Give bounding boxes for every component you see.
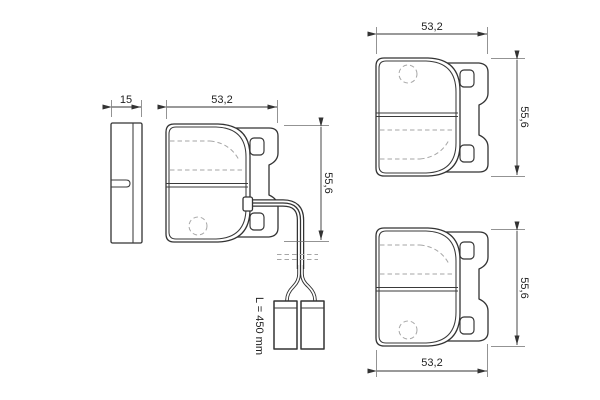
dim-front-height-label: 55,6 — [322, 172, 334, 193]
dim-rear-top-width-label: 53,2 — [421, 21, 442, 33]
brake-pad-drawing: 15 L = 450 mm 53,2 — [0, 0, 600, 400]
wire-length-label: L = 450 mm — [253, 297, 265, 355]
dim-rear-bottom-height-label: 55,6 — [518, 277, 530, 298]
connector-right — [301, 301, 324, 349]
dim-rear-top-height-label: 55,6 — [518, 106, 530, 127]
dim-rear-bottom-width: 53,2 — [377, 344, 488, 377]
front-pad-view — [166, 124, 278, 242]
rear-bottom-pad-view — [376, 228, 488, 346]
rear-top-pad-view — [376, 58, 488, 176]
dim-rear-bottom-width-label: 53,2 — [421, 357, 442, 369]
dim-side-thickness: 15 — [112, 94, 142, 117]
dim-side-thickness-label: 15 — [120, 94, 132, 106]
dim-front-width-label: 53,2 — [211, 94, 232, 106]
wear-sensor-tab — [243, 197, 253, 211]
side-thickness-view — [111, 123, 142, 243]
dim-front-width: 53,2 — [167, 94, 278, 123]
dim-rear-bottom-height: 55,6 — [491, 230, 530, 347]
technical-drawing-canvas: 15 L = 450 mm 53,2 — [0, 0, 600, 400]
dim-rear-top-width: 53,2 — [377, 21, 488, 54]
dim-rear-top-height: 55,6 — [491, 59, 530, 177]
dim-front-height: 55,6 — [284, 126, 334, 242]
connector-left — [274, 301, 297, 349]
